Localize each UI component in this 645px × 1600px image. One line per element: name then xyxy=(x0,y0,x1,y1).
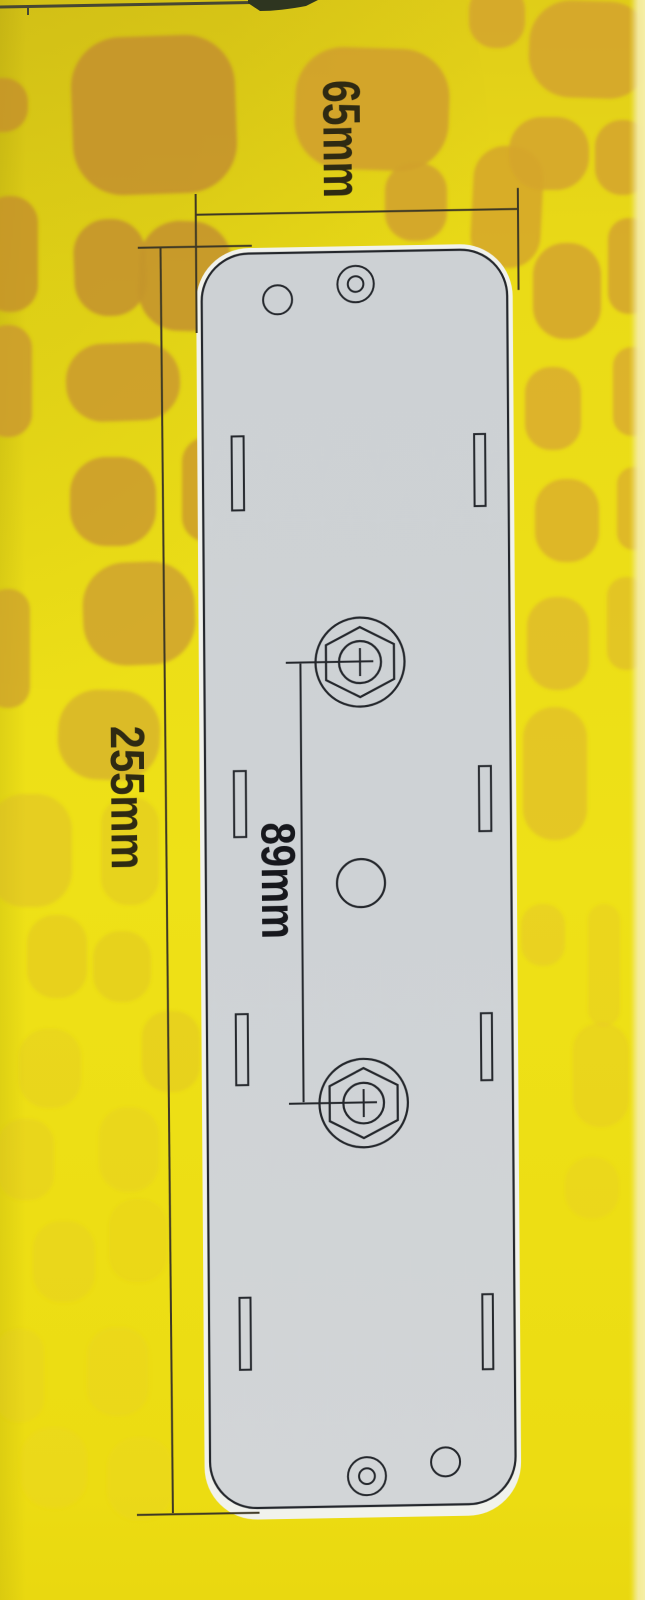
svg-text:255mm: 255mm xyxy=(100,725,155,870)
svg-text:89mm: 89mm xyxy=(250,822,304,940)
svg-text:65mm: 65mm xyxy=(312,79,372,198)
